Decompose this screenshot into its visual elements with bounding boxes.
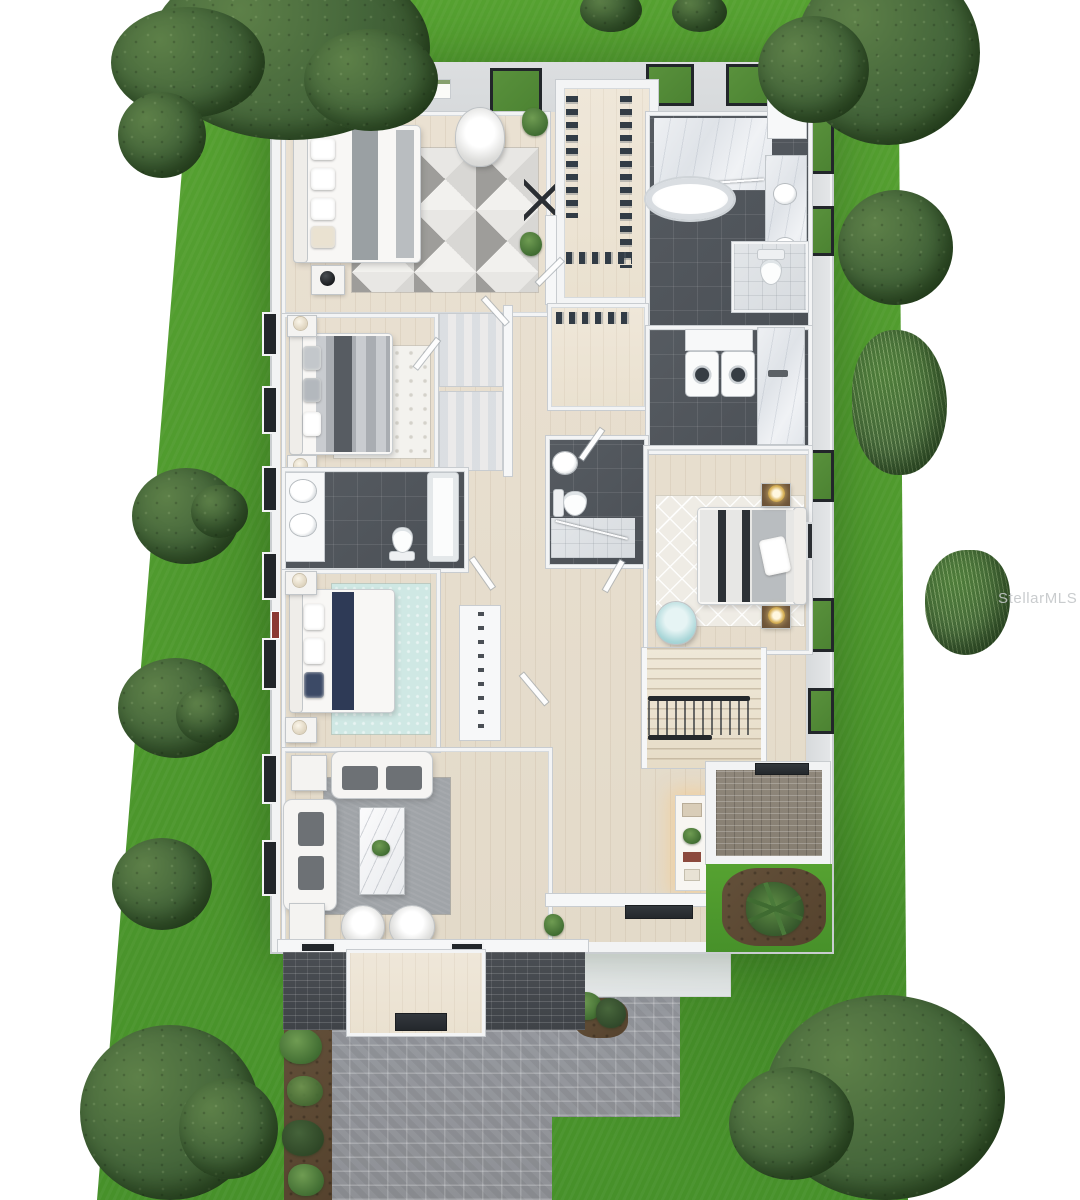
sofa-cushion [386,766,422,790]
freestanding-tub [646,178,734,220]
pillow [304,604,324,630]
window [264,388,276,432]
laundry-counter [758,328,804,444]
shrub [282,1120,324,1156]
pillow [311,226,335,248]
wall-art [272,612,279,638]
side-table [292,756,326,790]
gold-lamp [768,607,785,624]
bush-lobe [191,485,247,538]
porch-pavers-right [479,952,585,1030]
tree [838,190,953,305]
tree-lobe [758,16,869,123]
armchair [456,108,504,166]
watermark: StellarMLS [998,590,1077,607]
hanging-clothes [620,96,632,268]
console-plant [683,828,701,844]
console-table [676,796,708,890]
window [302,944,334,951]
upper-cabinets [686,330,752,350]
foyer-front-wall [546,894,708,906]
sink [290,514,316,536]
lamp [294,317,307,330]
hanging-clothes [556,312,634,324]
bush-lobe [176,686,239,744]
tree-lobe [179,1078,278,1180]
bed-2 [290,334,392,454]
shrub [288,1164,324,1196]
front-door-mat [396,1014,446,1030]
shrub [280,1028,322,1064]
closet-shelving [440,392,502,470]
ornamental-grass [852,330,947,475]
sink [774,184,796,204]
shrub-row-pad [596,998,626,1028]
stair-rail [648,735,712,740]
dryer [722,352,754,396]
lamp [293,574,306,587]
window [808,688,834,734]
window [264,640,276,688]
palm-plant [746,882,804,936]
stair-balusters [648,701,750,735]
sofa-cushion [298,856,324,890]
wall-art [806,522,814,560]
sink [290,480,316,502]
potted-plant [544,914,564,936]
bed-3 [698,508,806,604]
sofa-cushion [298,812,324,846]
bed-runner [334,336,352,452]
bush [118,92,206,178]
bed-stripe [742,510,750,602]
bed-stripe [718,510,726,602]
toilet-tank [390,552,414,560]
sofa-cushion [342,766,378,790]
toilet-tank [554,490,563,516]
pillow [304,672,324,698]
headboard [290,590,302,712]
entry-door-mat [626,906,692,918]
sofa [332,752,432,798]
potted-plant [520,232,542,256]
sink [553,452,577,474]
washer [686,352,718,396]
hanging-clothes [566,96,578,218]
tub [428,473,458,561]
console-books [683,852,701,862]
hall-wall [546,216,556,304]
window [264,314,276,354]
tree [765,995,1005,1200]
toilet-tank [758,250,784,259]
lamp [320,271,335,286]
pillow [303,378,321,402]
wardrobe-handles [478,612,484,734]
shrub [287,1076,323,1106]
pillow [311,168,335,190]
window [264,554,276,598]
tree [80,1025,260,1200]
primary-bed [294,126,420,262]
console-frames [683,804,701,816]
window [264,842,276,894]
lamp [293,721,306,734]
bed-4 [290,590,394,712]
porch-pavers-left [283,952,347,1030]
bed-runner-navy [332,592,354,710]
headboard [290,334,302,454]
duvet-striped [316,336,390,452]
sofa [284,800,336,910]
headboard [794,508,806,604]
window [264,756,276,802]
pillow [304,638,324,664]
side-table [290,904,324,940]
bush [112,838,212,930]
potted-plant [522,108,548,136]
teal-barrel-chair [656,602,696,644]
console-decor [685,870,699,880]
bed-runner [352,128,378,260]
laundry-sink-faucet [768,370,788,377]
floor-plan-render: StellarMLS [0,0,1080,1200]
lanai-pavers [716,770,822,856]
pillow [303,412,321,436]
pillow [311,198,335,220]
hanging-clothes [566,252,632,264]
table-plant [372,840,390,856]
pillow [311,138,335,160]
gold-lamp [768,485,785,502]
grill-mat [756,764,808,774]
pillow [303,346,321,370]
bush [118,658,233,758]
headboard [294,126,307,262]
bed-throw [396,130,414,258]
closet-shelving [440,314,502,386]
hall-wall [504,306,512,476]
window [264,468,276,510]
bush [132,468,240,564]
tree-lobe [729,1067,854,1180]
tree-lobe [304,29,438,131]
